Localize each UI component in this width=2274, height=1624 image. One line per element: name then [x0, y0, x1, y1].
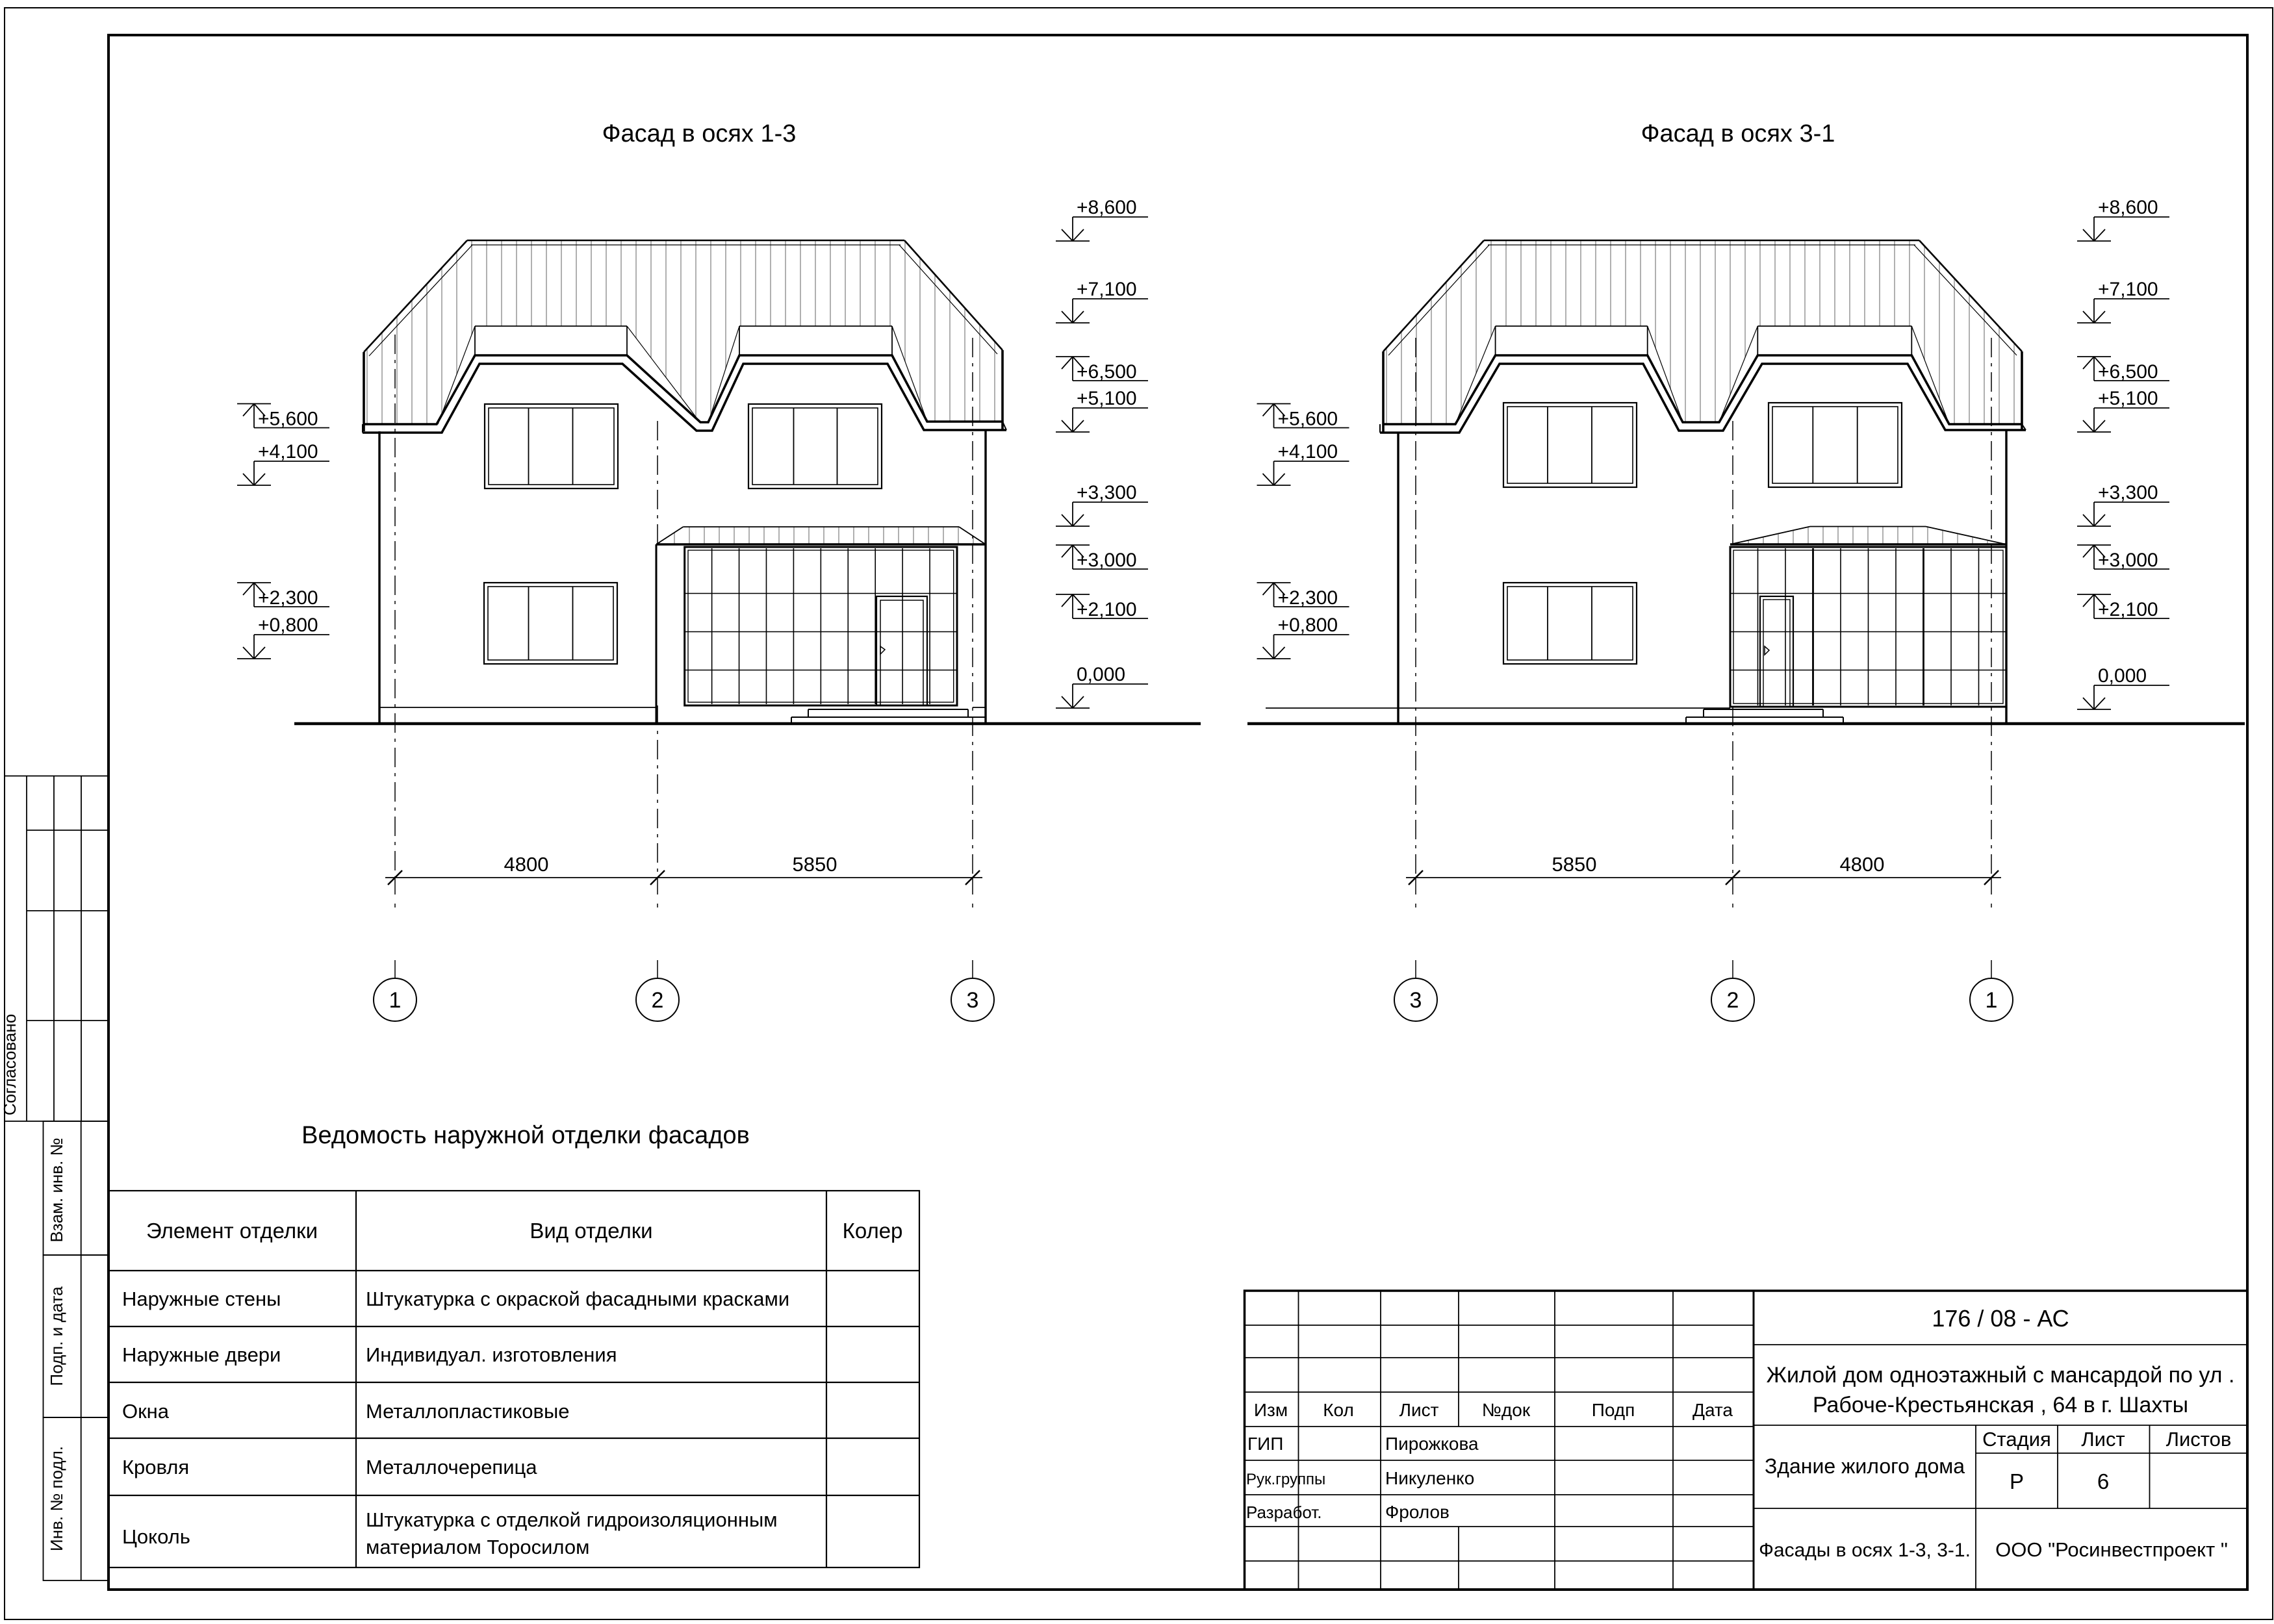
svg-text:Инв. № подл.: Инв. № подл.	[47, 1446, 66, 1551]
svg-text:Кровля: Кровля	[122, 1456, 189, 1478]
svg-text:Штукатурка с отделкой гидроизо: Штукатурка с отделкой гидроизоляционным	[366, 1508, 778, 1531]
svg-text:+3,300: +3,300	[2098, 482, 2158, 503]
svg-text:+8,600: +8,600	[2098, 197, 2158, 218]
svg-text:+3,000: +3,000	[1077, 550, 1137, 571]
svg-text:+3,300: +3,300	[1077, 482, 1137, 503]
svg-text:+5,100: +5,100	[2098, 388, 2158, 409]
svg-text:Фасады в осях 1-3, 3-1.: Фасады в осях 1-3, 3-1.	[1759, 1540, 1971, 1561]
svg-text:Фасад в осях 1-3: Фасад в осях 1-3	[602, 120, 797, 147]
svg-text:Вид отделки: Вид отделки	[530, 1219, 652, 1243]
svg-text:+5,600: +5,600	[1278, 409, 1338, 430]
svg-text:+5,600: +5,600	[258, 409, 318, 430]
svg-text:Р: Р	[2010, 1469, 2024, 1493]
svg-text:5850: 5850	[1552, 853, 1597, 876]
svg-text:Лист: Лист	[2081, 1428, 2125, 1451]
svg-text:176 / 08 - АС: 176 / 08 - АС	[1932, 1305, 2069, 1332]
svg-text:0,000: 0,000	[2098, 665, 2147, 687]
svg-text:+8,600: +8,600	[1077, 197, 1137, 218]
svg-text:+7,100: +7,100	[1077, 279, 1137, 300]
svg-text:+4,100: +4,100	[1278, 441, 1338, 463]
svg-text:+6,500: +6,500	[1077, 361, 1137, 383]
svg-text:Индивидуал. изготовления: Индивидуал. изготовления	[366, 1343, 617, 1366]
svg-text:Листов: Листов	[2166, 1428, 2232, 1451]
svg-text:Ведомость наружной отделки фас: Ведомость наружной отделки фасадов	[301, 1122, 750, 1149]
svg-text:3: 3	[967, 988, 979, 1013]
svg-text:Наружные стены: Наружные стены	[122, 1288, 281, 1310]
svg-text:+2,100: +2,100	[1077, 599, 1137, 620]
svg-text:4800: 4800	[1840, 853, 1885, 876]
svg-text:Цоколь: Цоколь	[122, 1525, 190, 1548]
svg-text:Здание жилого дома: Здание жилого дома	[1765, 1454, 1965, 1478]
svg-text:+0,800: +0,800	[1278, 615, 1338, 636]
svg-text:Рабоче-Крестьянская , 64 в г.: Рабоче-Крестьянская , 64 в г. Шахты	[1813, 1393, 2188, 1417]
svg-text:Фролов: Фролов	[1385, 1502, 1450, 1522]
svg-text:Пирожкова: Пирожкова	[1385, 1434, 1479, 1454]
svg-text:Стадия: Стадия	[1982, 1428, 2051, 1451]
svg-text:3: 3	[1410, 988, 1422, 1013]
svg-text:+0,800: +0,800	[258, 615, 318, 636]
svg-text:+2,300: +2,300	[1278, 587, 1338, 609]
svg-text:Штукатурка с окраской фасадным: Штукатурка с окраской фасадными красками	[366, 1288, 789, 1310]
svg-text:+2,100: +2,100	[2098, 599, 2158, 620]
svg-text:Металлочерепица: Металлочерепица	[366, 1456, 537, 1478]
svg-text:Кол: Кол	[1323, 1400, 1354, 1420]
svg-text:Подп: Подп	[1592, 1400, 1635, 1420]
svg-text:4800: 4800	[504, 853, 549, 876]
svg-text:2: 2	[652, 988, 664, 1013]
svg-text:+4,100: +4,100	[258, 441, 318, 463]
svg-text:Жилой дом одноэтажный с мансар: Жилой дом одноэтажный с мансардой по ул …	[1767, 1363, 2235, 1388]
svg-text:Лист: Лист	[1399, 1400, 1439, 1420]
svg-text:Колер: Колер	[843, 1219, 903, 1243]
svg-text:1: 1	[1986, 988, 1998, 1013]
svg-text:№док: №док	[1482, 1400, 1531, 1420]
svg-text:Взам. инв. №: Взам. инв. №	[47, 1137, 66, 1242]
svg-text:+3,000: +3,000	[2098, 550, 2158, 571]
svg-text:материалом Торосилом: материалом Торосилом	[366, 1536, 589, 1558]
svg-text:Металлопластиковые: Металлопластиковые	[366, 1400, 570, 1423]
svg-text:Наружные двери: Наружные двери	[122, 1343, 281, 1366]
svg-text:ООО "Росинвестпроект ": ООО "Росинвестпроект "	[1995, 1538, 2228, 1561]
svg-text:Элемент отделки: Элемент отделки	[146, 1219, 318, 1243]
svg-text:Рук.группы: Рук.группы	[1246, 1471, 1325, 1488]
svg-text:ГИП: ГИП	[1247, 1434, 1283, 1454]
svg-text:Разработ.: Разработ.	[1246, 1503, 1322, 1522]
svg-text:+7,100: +7,100	[2098, 279, 2158, 300]
svg-text:Никуленко: Никуленко	[1385, 1468, 1474, 1488]
svg-text:6: 6	[2097, 1469, 2109, 1493]
svg-text:Согласовано: Согласовано	[0, 1014, 19, 1115]
svg-text:Окна: Окна	[122, 1400, 170, 1423]
svg-text:+2,300: +2,300	[258, 587, 318, 609]
svg-text:Фасад в осях 3-1: Фасад в осях 3-1	[1641, 120, 1835, 147]
svg-text:2: 2	[1727, 988, 1739, 1013]
svg-text:1: 1	[389, 988, 402, 1013]
svg-text:0,000: 0,000	[1077, 664, 1125, 685]
svg-text:Подп. и дата: Подп. и дата	[47, 1286, 66, 1386]
svg-text:5850: 5850	[793, 853, 837, 876]
svg-text:Изм: Изм	[1254, 1400, 1288, 1420]
svg-text:Дата: Дата	[1693, 1400, 1733, 1420]
svg-text:+6,500: +6,500	[2098, 361, 2158, 383]
svg-text:+5,100: +5,100	[1077, 388, 1137, 409]
